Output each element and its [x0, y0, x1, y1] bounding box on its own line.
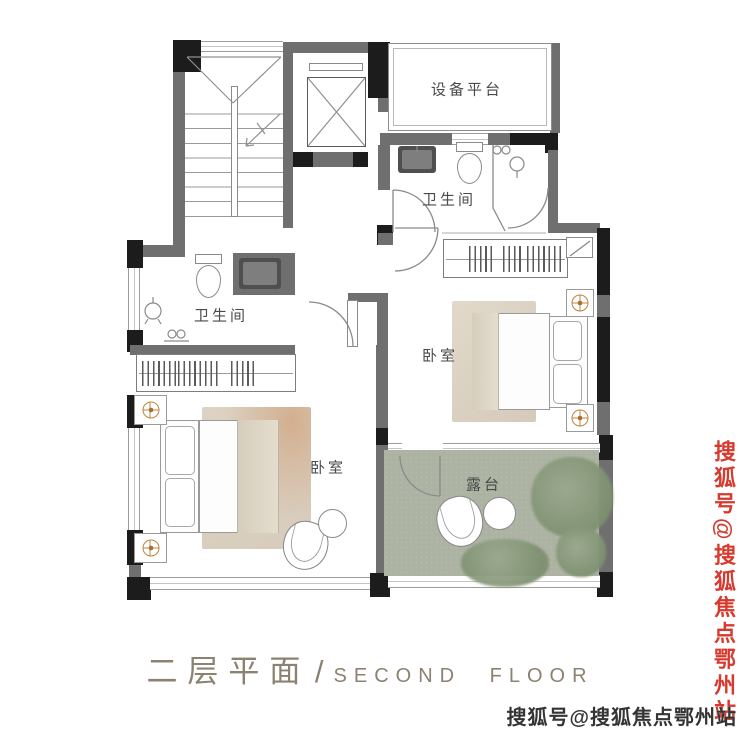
watermark-vertical: 搜狐号@搜狐焦点鄂州站: [707, 440, 739, 725]
room-label-bedroom-right: 卧室: [422, 349, 458, 364]
room-label-bathroom-top: 卫生间: [422, 193, 476, 208]
plan-linework: [0, 0, 740, 740]
room-label-terrace: 露台: [466, 478, 502, 493]
watermark-bottom: 搜狐号@搜狐焦点鄂州站: [506, 701, 737, 730]
room-label-equipment-platform: 设备平台: [431, 83, 503, 98]
room-label-bedroom-left: 卧室: [310, 461, 346, 476]
plan-title: 二层平面 /SECOND FLOOR: [0, 646, 740, 691]
room-label-bathroom-left: 卫生间: [194, 309, 248, 324]
title-english: SECOND FLOOR: [334, 665, 594, 687]
title-separator: /: [315, 654, 324, 689]
title-chinese: 二层平面: [146, 654, 310, 689]
floor-plan-canvas: 设备平台 卫生间 卫生间 卧室 卧室 露台: [0, 0, 740, 740]
